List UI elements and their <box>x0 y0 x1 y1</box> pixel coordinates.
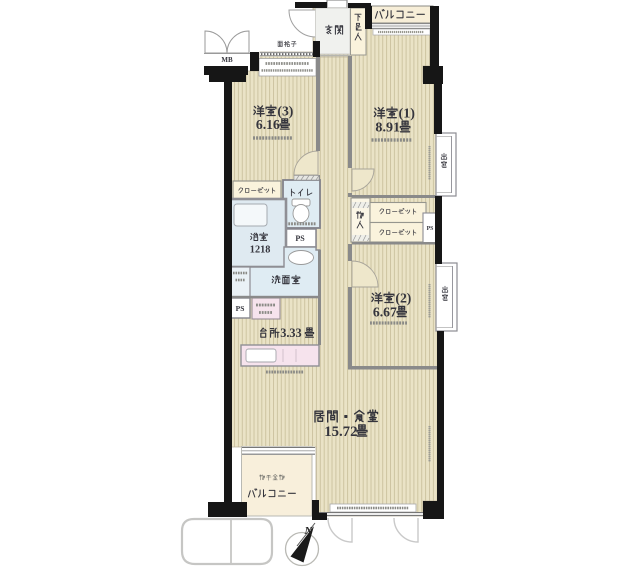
svg-text:PS: PS <box>236 304 245 313</box>
svg-text:8.91: 8.91 <box>375 120 400 136</box>
svg-text:PS: PS <box>427 226 434 232</box>
svg-text:6.16: 6.16 <box>256 117 280 132</box>
svg-text:15.72: 15.72 <box>324 424 357 440</box>
svg-text:3.33: 3.33 <box>280 326 302 340</box>
svg-text:(2): (2) <box>395 290 411 306</box>
svg-text:MB: MB <box>221 56 233 64</box>
svg-text:PS: PS <box>295 234 305 243</box>
svg-text:N: N <box>304 525 314 537</box>
svg-text:6.67: 6.67 <box>373 304 397 319</box>
svg-text:(1): (1) <box>399 106 416 122</box>
svg-text:1218: 1218 <box>250 244 271 255</box>
